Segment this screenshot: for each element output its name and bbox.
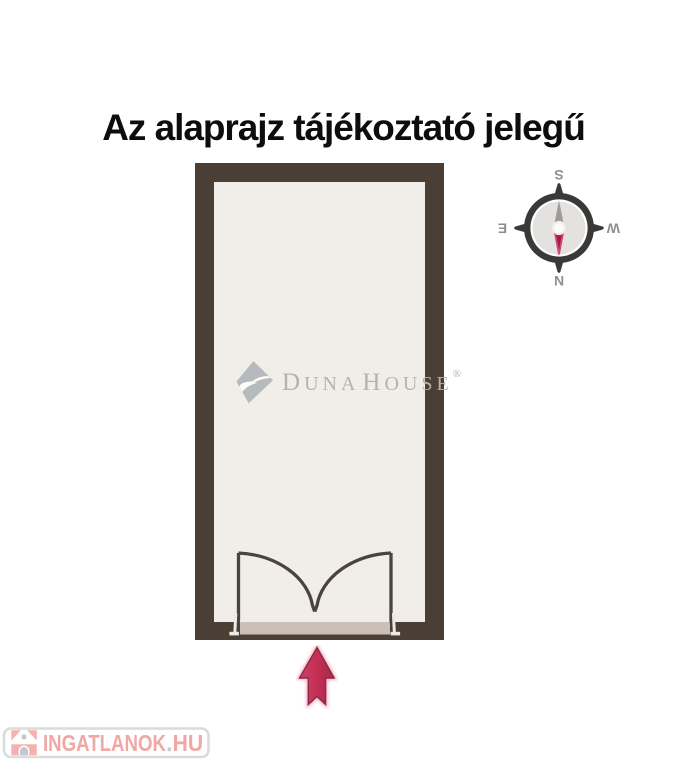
svg-text:INGATLANOK: INGATLANOK [43, 730, 166, 756]
svg-text:N: N [554, 273, 564, 289]
svg-text:W: W [606, 220, 620, 236]
svg-text:E: E [498, 220, 507, 236]
svg-text:HU: HU [173, 730, 204, 756]
svg-text:S: S [554, 167, 563, 183]
